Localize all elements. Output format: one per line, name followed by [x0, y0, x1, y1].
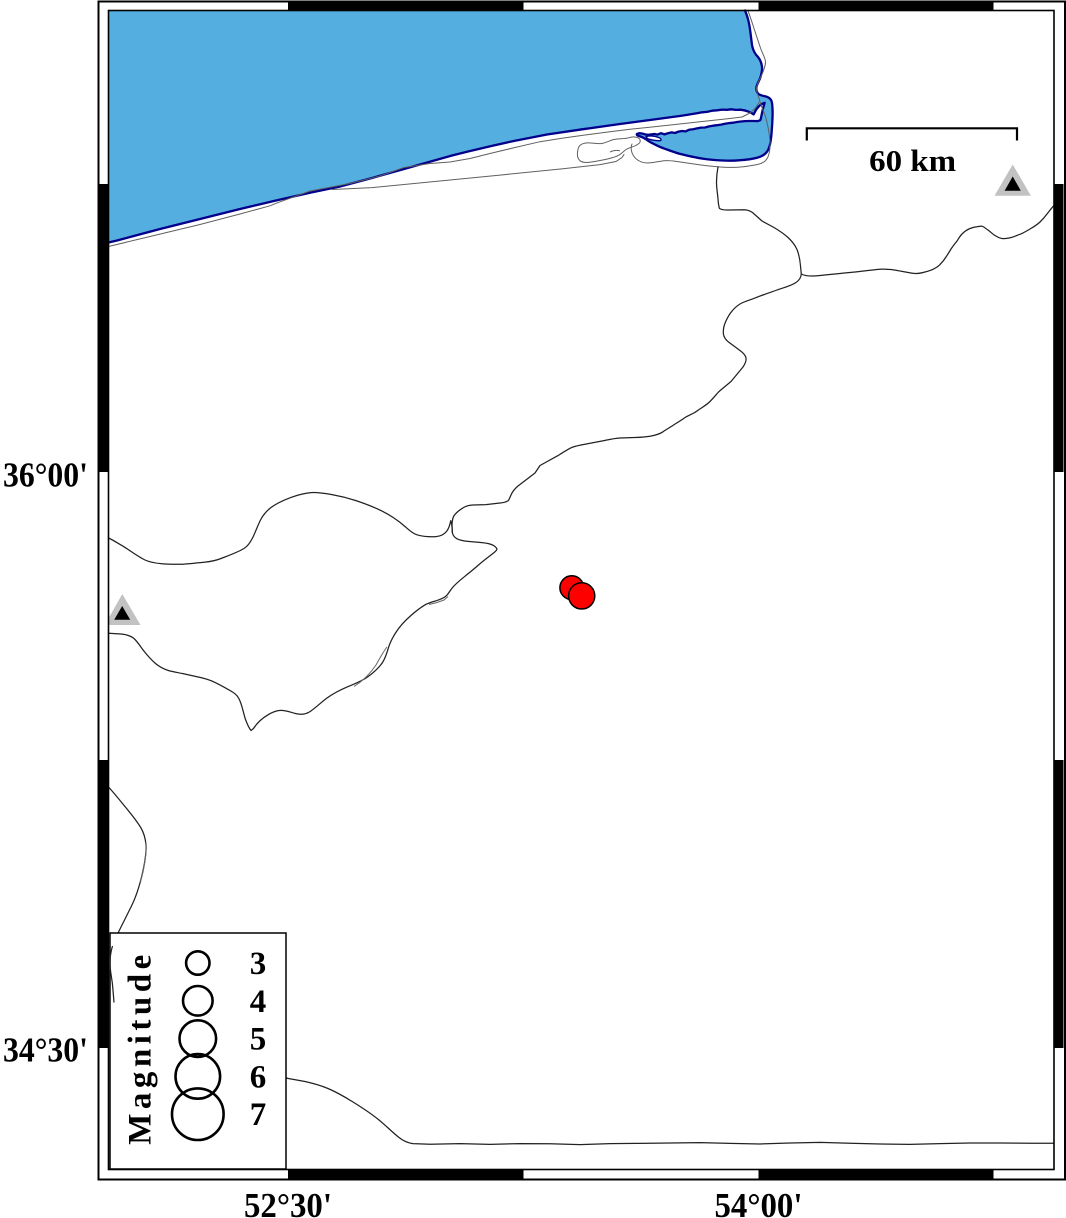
svg-text:5: 5	[250, 1022, 267, 1058]
svg-text:34°30': 34°30'	[3, 1031, 88, 1070]
svg-text:36°00': 36°00'	[3, 456, 88, 495]
svg-text:3: 3	[250, 946, 267, 982]
svg-text:60 km: 60 km	[869, 143, 956, 178]
svg-text:4: 4	[250, 984, 267, 1020]
svg-text:52°30': 52°30'	[244, 1186, 332, 1218]
svg-text:54°00': 54°00'	[715, 1186, 803, 1218]
svg-text:Magnitude: Magnitude	[123, 950, 159, 1145]
svg-text:7: 7	[250, 1097, 267, 1133]
svg-text:6: 6	[250, 1060, 267, 1096]
